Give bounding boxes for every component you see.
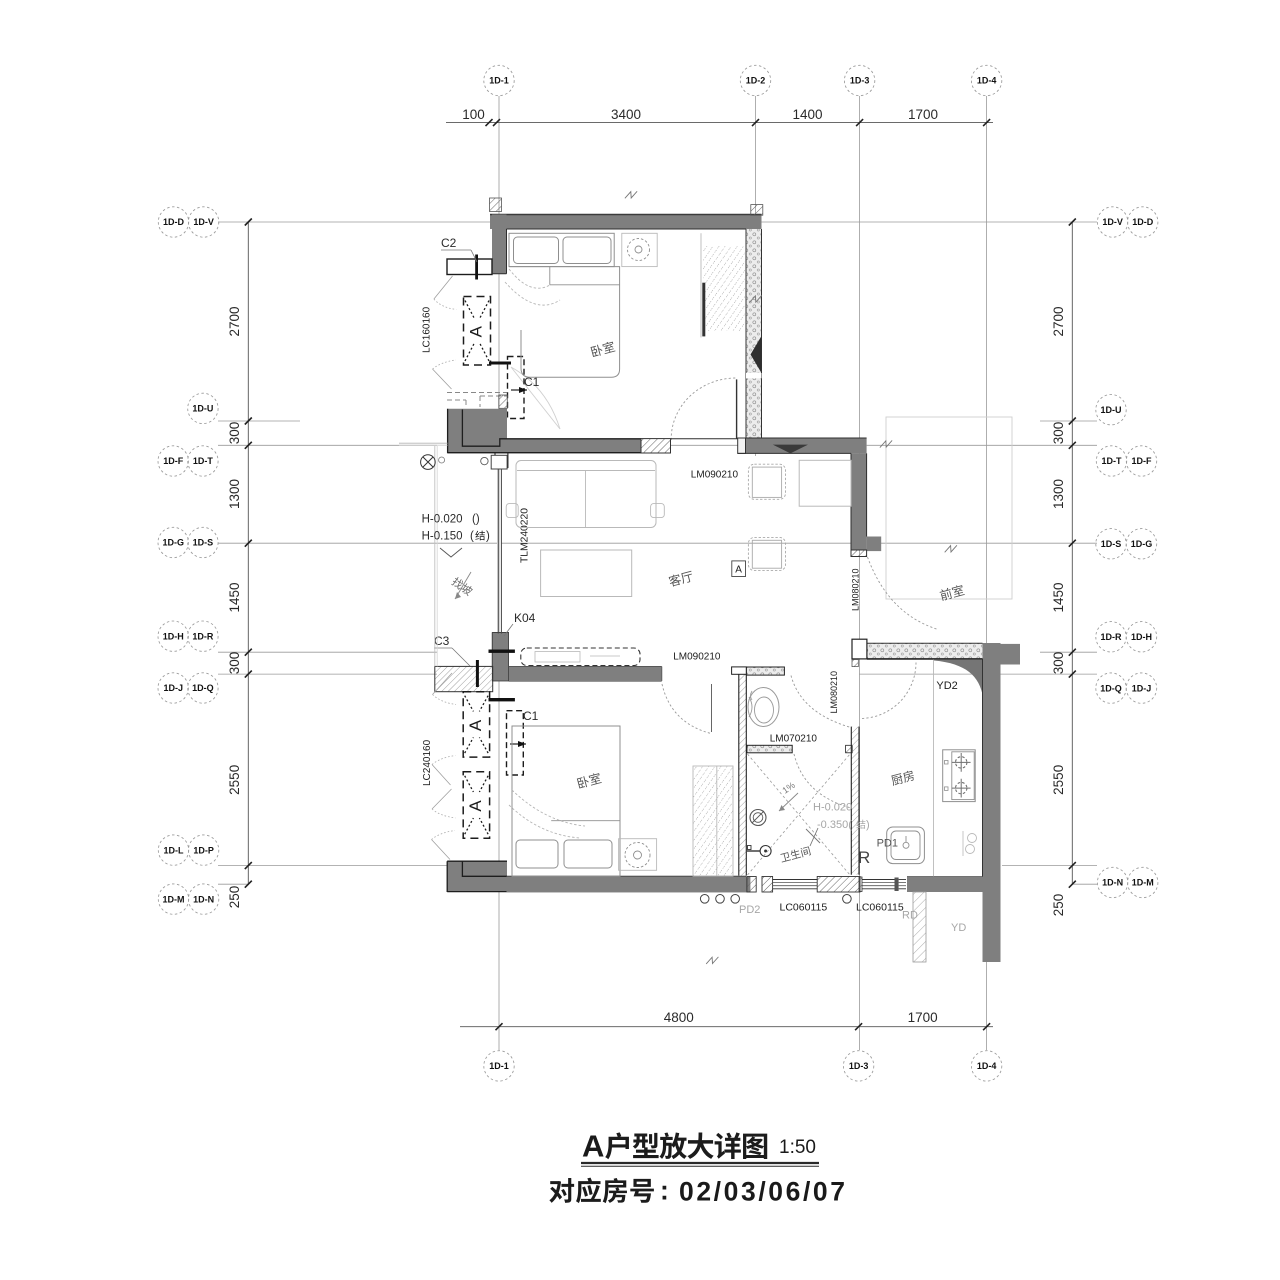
- svg-text:1D-H: 1D-H: [163, 631, 184, 641]
- svg-text:1D-Q: 1D-Q: [192, 683, 214, 693]
- svg-text:1D-4: 1D-4: [977, 76, 997, 86]
- svg-text:1300: 1300: [227, 479, 242, 509]
- svg-text:300: 300: [1051, 652, 1066, 675]
- svg-text:LC060115: LC060115: [780, 902, 828, 914]
- svg-text:1D-D: 1D-D: [1132, 217, 1154, 227]
- svg-text:1D-4: 1D-4: [977, 1061, 997, 1071]
- svg-text::: :: [660, 1176, 669, 1206]
- svg-text:1D-2: 1D-2: [746, 76, 766, 86]
- svg-text:LC240160: LC240160: [422, 739, 433, 786]
- svg-text:300: 300: [227, 652, 242, 675]
- svg-text:1D-J: 1D-J: [1132, 683, 1152, 693]
- svg-text:1D-R: 1D-R: [192, 631, 214, 641]
- svg-text:C3: C3: [434, 634, 450, 648]
- svg-text:3400: 3400: [611, 107, 641, 122]
- svg-text:1D-M: 1D-M: [163, 894, 185, 904]
- svg-text:1D-F: 1D-F: [1132, 456, 1153, 466]
- svg-text:1450: 1450: [1051, 582, 1066, 612]
- svg-text:): ): [866, 819, 870, 831]
- svg-text:LC060115: LC060115: [856, 902, 904, 914]
- svg-text:C2: C2: [441, 236, 457, 250]
- svg-text:2550: 2550: [1051, 765, 1066, 795]
- svg-text:250: 250: [1051, 894, 1066, 917]
- svg-text:1D-T: 1D-T: [193, 456, 214, 466]
- svg-text:1D-S: 1D-S: [1101, 539, 1122, 549]
- svg-text:RD: RD: [902, 910, 918, 922]
- svg-text:1D-D: 1D-D: [163, 217, 185, 227]
- svg-text:A: A: [466, 325, 485, 337]
- svg-text:1D-S: 1D-S: [193, 538, 214, 548]
- svg-text:R: R: [858, 848, 870, 867]
- svg-text:1300: 1300: [1051, 479, 1066, 509]
- svg-text:LM090210: LM090210: [691, 470, 739, 481]
- svg-text:4800: 4800: [664, 1010, 694, 1025]
- svg-text:1:50: 1:50: [779, 1137, 816, 1158]
- svg-text:1D-T: 1D-T: [1102, 456, 1123, 466]
- svg-text:LM080210: LM080210: [829, 671, 839, 714]
- svg-text:1D-N: 1D-N: [1102, 878, 1123, 888]
- svg-text:C1: C1: [523, 709, 539, 723]
- svg-text:1D-M: 1D-M: [1132, 878, 1154, 888]
- svg-text:1D-N: 1D-N: [193, 894, 214, 904]
- svg-text:LC160160: LC160160: [422, 306, 433, 353]
- svg-text:PD1: PD1: [877, 838, 898, 850]
- svg-text:1400: 1400: [792, 107, 822, 122]
- svg-text:1D-H: 1D-H: [1131, 632, 1152, 642]
- svg-text:1D-U: 1D-U: [192, 404, 213, 414]
- svg-text:2700: 2700: [1051, 306, 1066, 336]
- svg-text:H-0.020: H-0.020: [813, 802, 852, 814]
- svg-text:300: 300: [227, 422, 242, 445]
- svg-text:1D-G: 1D-G: [162, 538, 184, 548]
- svg-text:1D-1: 1D-1: [489, 1061, 509, 1071]
- svg-text:1D-1: 1D-1: [489, 76, 509, 86]
- svg-text:02/03/06/07: 02/03/06/07: [679, 1177, 848, 1207]
- svg-text:1D-3: 1D-3: [850, 76, 870, 86]
- svg-text:300: 300: [1051, 422, 1066, 445]
- svg-text:1D-R: 1D-R: [1100, 632, 1122, 642]
- svg-text:1D-3: 1D-3: [849, 1061, 869, 1071]
- svg-text:): ): [486, 531, 490, 543]
- svg-text:K04: K04: [514, 611, 536, 625]
- svg-text:A: A: [466, 800, 485, 812]
- svg-text:LM080210: LM080210: [851, 568, 861, 611]
- svg-text:1450: 1450: [227, 582, 242, 612]
- svg-text:A: A: [582, 1129, 604, 1164]
- svg-text:1700: 1700: [908, 1010, 938, 1025]
- svg-text:1D-J: 1D-J: [163, 683, 183, 693]
- svg-text:1700: 1700: [908, 107, 938, 122]
- svg-text:1D-U: 1D-U: [1100, 405, 1121, 415]
- svg-text:LM090210: LM090210: [673, 651, 721, 662]
- svg-text:2700: 2700: [227, 306, 242, 336]
- svg-text:1D-V: 1D-V: [193, 217, 214, 227]
- svg-text:1D-G: 1D-G: [1131, 539, 1153, 549]
- svg-text:TLM240220: TLM240220: [520, 508, 531, 563]
- svg-text:-0.350(: -0.350(: [817, 819, 852, 831]
- svg-text:1D-V: 1D-V: [1102, 217, 1123, 227]
- svg-text:H-0.020: H-0.020: [422, 514, 463, 526]
- svg-text:1D-Q: 1D-Q: [1100, 683, 1122, 693]
- svg-text:2550: 2550: [227, 765, 242, 795]
- svg-text:1D-L: 1D-L: [164, 845, 185, 855]
- svg-text:1D-P: 1D-P: [193, 845, 214, 855]
- svg-text:250: 250: [227, 886, 242, 909]
- svg-text:A: A: [466, 719, 485, 731]
- svg-text:YD: YD: [951, 922, 966, 934]
- svg-text:H-0.150: H-0.150: [422, 531, 463, 543]
- svg-text:(: (: [470, 531, 474, 543]
- svg-text:100: 100: [462, 107, 485, 122]
- svg-text:(): (): [472, 514, 480, 526]
- svg-text:PD2: PD2: [739, 904, 760, 916]
- svg-text:1D-F: 1D-F: [163, 456, 184, 466]
- svg-text:A: A: [735, 565, 742, 576]
- svg-text:LM070210: LM070210: [770, 734, 818, 745]
- svg-text:YD2: YD2: [936, 680, 957, 692]
